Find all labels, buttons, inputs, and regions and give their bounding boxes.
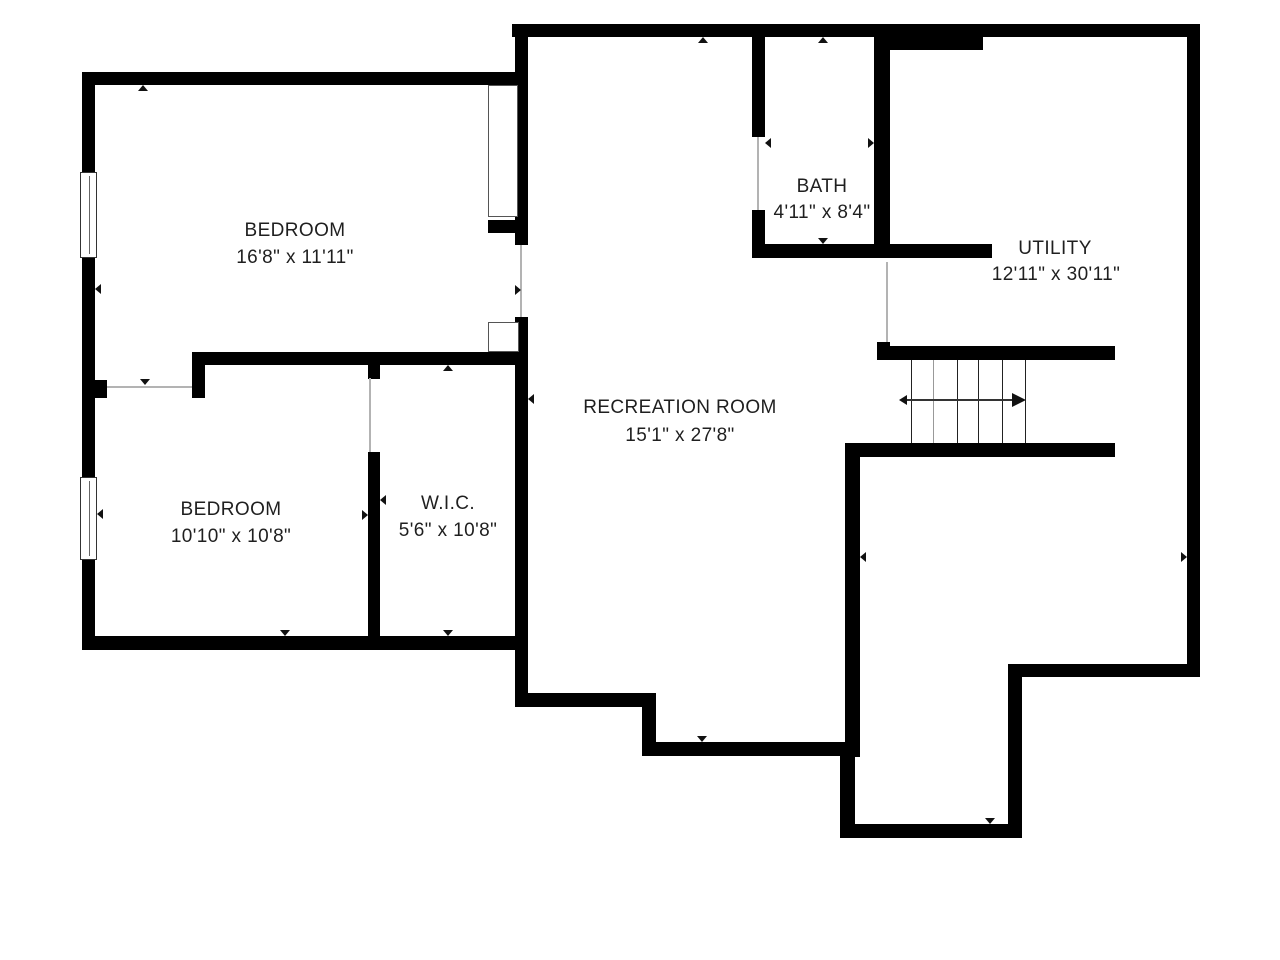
marker-right-icon [515,285,521,295]
stair-riser [911,360,912,443]
wall-bedroom1-top [82,72,515,85]
room-label-bedroom1-name: BEDROOM [245,220,346,242]
wall-wic-divider-stub [368,365,380,379]
stair-riser [957,360,958,443]
window-bedroom1 [80,172,97,258]
wall-doorway-stub [95,380,107,398]
wall-stairs-top [884,346,1115,360]
room-label-bath-dims: 4'11" x 8'4" [773,202,870,224]
marker-up-icon [138,85,148,91]
marker-left-icon [380,495,386,505]
wall-left-b [82,258,95,477]
marker-down-icon [818,238,828,244]
door-opening-bedroom1-bedroom2 [107,386,192,388]
wall-recreation-bottom-left [515,693,656,707]
wall-utility-bulkhead [877,37,983,50]
door-opening-bedroom1-recreation [520,245,522,317]
wall-top [512,24,1200,37]
door-opening-bedroom2-wic [369,378,371,452]
door-opening-bath [757,137,759,210]
marker-down-icon [697,736,707,742]
wall-bottom-lower [840,824,1022,838]
wall-stairs-bottom [845,443,1115,457]
marker-down-icon [140,379,150,385]
window-pane [89,481,90,556]
marker-left-icon [860,552,866,562]
wall-bedroom1-south [197,352,528,365]
marker-left-icon [95,284,101,294]
marker-up-icon [443,365,453,371]
marker-down-icon [443,630,453,636]
stair-riser [1002,360,1003,443]
wall-bath-left-upper [752,24,765,137]
stairs-direction-line [903,399,1015,401]
window-pane [89,176,90,254]
wall-bath-bottom [752,244,992,258]
stair-riser [978,360,979,443]
wall-bottom-right-horizontal [1008,664,1200,677]
room-label-wic-dims: 5'6" x 10'8" [399,520,497,542]
marker-right-icon [868,138,874,148]
wall-recreation-bottom [642,742,854,756]
wall-lower-right-vertical [1008,664,1022,838]
stairs-direction-tail-icon [899,395,907,405]
wall-left-a [82,72,95,172]
marker-left-icon [528,394,534,404]
wall-right [1187,24,1200,677]
window-bedroom2 [80,477,97,560]
wall-lower-left-vertical [845,443,860,757]
room-label-bedroom1-dims: 16'8" x 11'11" [236,247,354,269]
door-opening-recreation-utility [886,262,888,342]
marker-left-icon [765,138,771,148]
stairs-direction-arrow-icon [1012,393,1026,407]
wall-lower-left-vertical-2 [840,742,855,838]
room-label-recreation-dims: 15'1" x 27'8" [625,425,734,447]
marker-left-icon [97,509,103,519]
marker-right-icon [1181,552,1187,562]
room-label-bedroom2-name: BEDROOM [181,499,282,521]
room-label-utility-name: UTILITY [1018,238,1092,260]
room-label-bath-name: BATH [797,176,848,198]
wall-nook-lower [488,322,519,352]
wall-bedrooms-bottom [82,636,528,650]
wall-nook-upper [488,85,518,217]
stair-riser [933,360,934,443]
floor-plan: BEDROOM 16'8" x 11'11" BEDROOM 10'10" x … [0,0,1280,960]
room-label-utility-dims: 12'11" x 30'11" [992,264,1121,286]
marker-up-icon [818,37,828,43]
marker-up-icon [698,37,708,43]
wall-nook-stub [488,220,528,233]
room-label-bedroom2-dims: 10'10" x 10'8" [171,526,291,548]
wall-bedroom1-south-step [192,352,205,398]
room-label-recreation-name: RECREATION ROOM [583,397,777,419]
marker-right-icon [362,510,368,520]
marker-down-icon [280,630,290,636]
wall-wic-divider [368,452,380,650]
wall-bath-right [874,24,890,258]
room-label-wic-name: W.I.C. [421,493,475,515]
marker-down-icon [985,818,995,824]
